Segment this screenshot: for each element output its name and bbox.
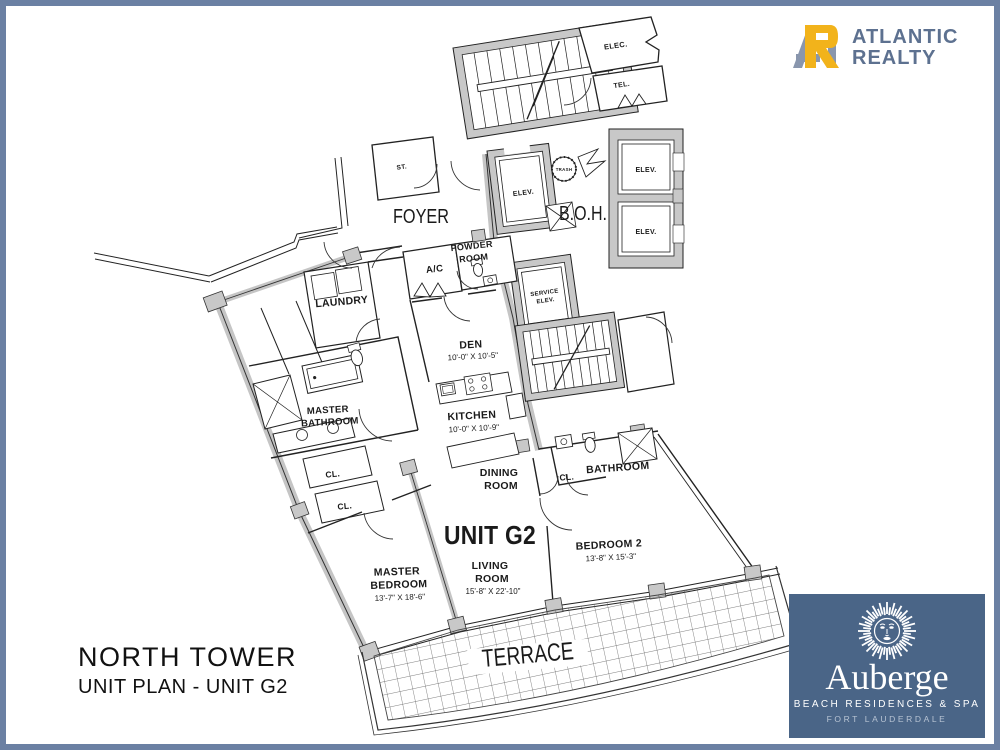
master-bedroom-dim: 13'-7" X 18'-6" [374,592,425,603]
title-block: NORTH TOWER UNIT PLAN - UNIT G2 [78,642,297,699]
closet-label: CL. [337,500,353,511]
dining-room-label: DINING [480,467,519,479]
plan-subtitle: UNIT PLAN - UNIT G2 [78,676,297,699]
kitchen-dim: 10'-0" X 10'-9" [448,423,499,435]
atlantic-realty-logo: ATLANTIC REALTY [792,24,959,70]
living-room-label: LIVING [472,560,509,572]
auberge-name: Auberge [825,660,948,694]
master-bathroom-label: MASTER [307,404,349,417]
auberge-logo: Auberge BEACH RESIDENCES & SPA FORT LAUD… [789,594,985,738]
boh-label: B.O.H. [559,203,607,225]
closet-label: CL. [325,468,341,479]
living-room-dim: 15'-8" X 22'-10" [466,587,521,596]
auberge-subtitle: BEACH RESIDENCES & SPA [794,699,981,710]
bathroom2-label: BATHROOM [586,460,650,476]
staircase-2 [515,312,625,401]
ar-monogram [793,25,839,68]
st-label: ST. [396,163,407,171]
den-dim: 10'-0" X 10'-5" [447,351,498,363]
trash-label: TRASH [556,167,573,172]
bathroom2-fixtures [555,428,657,464]
foyer-label: FOYER [393,206,449,228]
elevator-label: ELEV. [635,167,656,174]
plan-title: NORTH TOWER [78,642,297,673]
unit-label: UNIT G2 [444,520,536,550]
living-room-label: ROOM [475,573,509,585]
corridor-walls [94,157,348,282]
trash-chute: TRASH [552,149,605,181]
dining-room-label: ROOM [484,480,518,492]
auberge-sun-icon [853,600,921,662]
brand-line2: REALTY [852,48,959,69]
kitchen-label: KITCHEN [447,409,496,424]
elevator-bank: ELEV. ELEV. [609,129,684,268]
brand-line1: ATLANTIC [852,27,959,48]
ac-label: A/C [425,263,443,276]
unit-plan-flyer: { "page": { "border_color": "#6b80a3", "… [0,0,1000,750]
closet-label: CL. [559,471,574,482]
atlantic-realty-icon [792,24,842,70]
bedroom2-dim: 13'-8" X 15'-3" [585,552,636,564]
master-bedroom-label: MASTER [374,565,421,579]
bedroom2-label: BEDROOM 2 [575,537,642,552]
sun-face [875,619,900,644]
master-bedroom-label: BEDROOM [370,578,427,592]
vestibule [618,312,674,392]
den-label: DEN [459,338,483,351]
elevator-label: ELEV. [635,229,656,236]
auberge-city: FORT LAUDERDALE [827,714,948,724]
